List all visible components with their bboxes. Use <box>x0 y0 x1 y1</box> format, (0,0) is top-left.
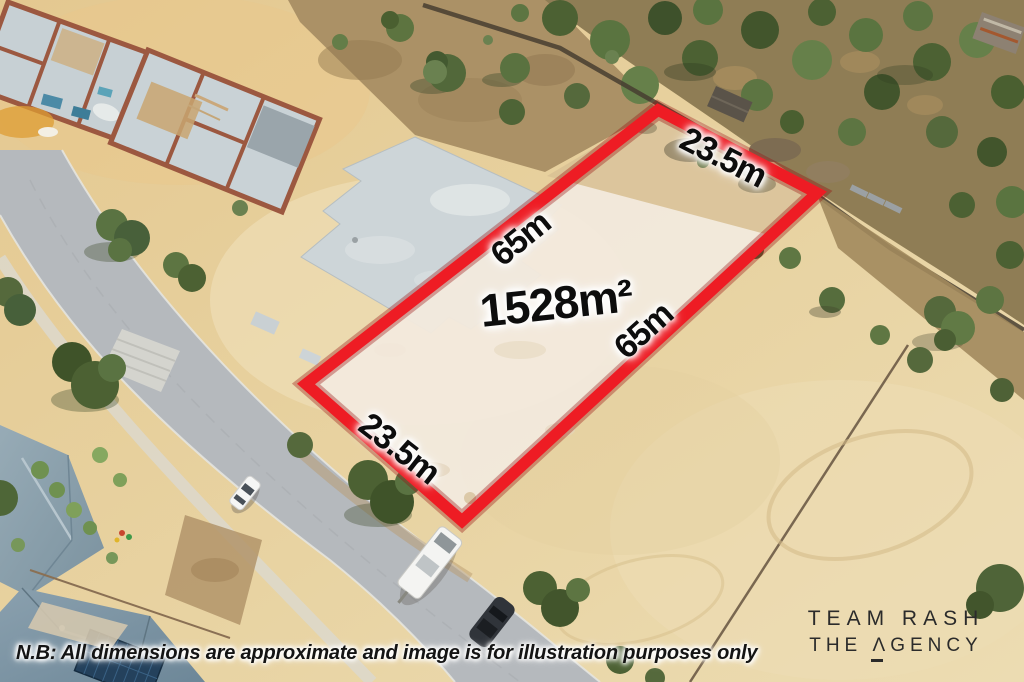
debris-pile <box>806 161 850 183</box>
aerial-photo <box>0 0 1024 682</box>
listing-photo: 23.5m 65m 65m 23.5m 1528m² N.B: All dime… <box>0 0 1024 682</box>
